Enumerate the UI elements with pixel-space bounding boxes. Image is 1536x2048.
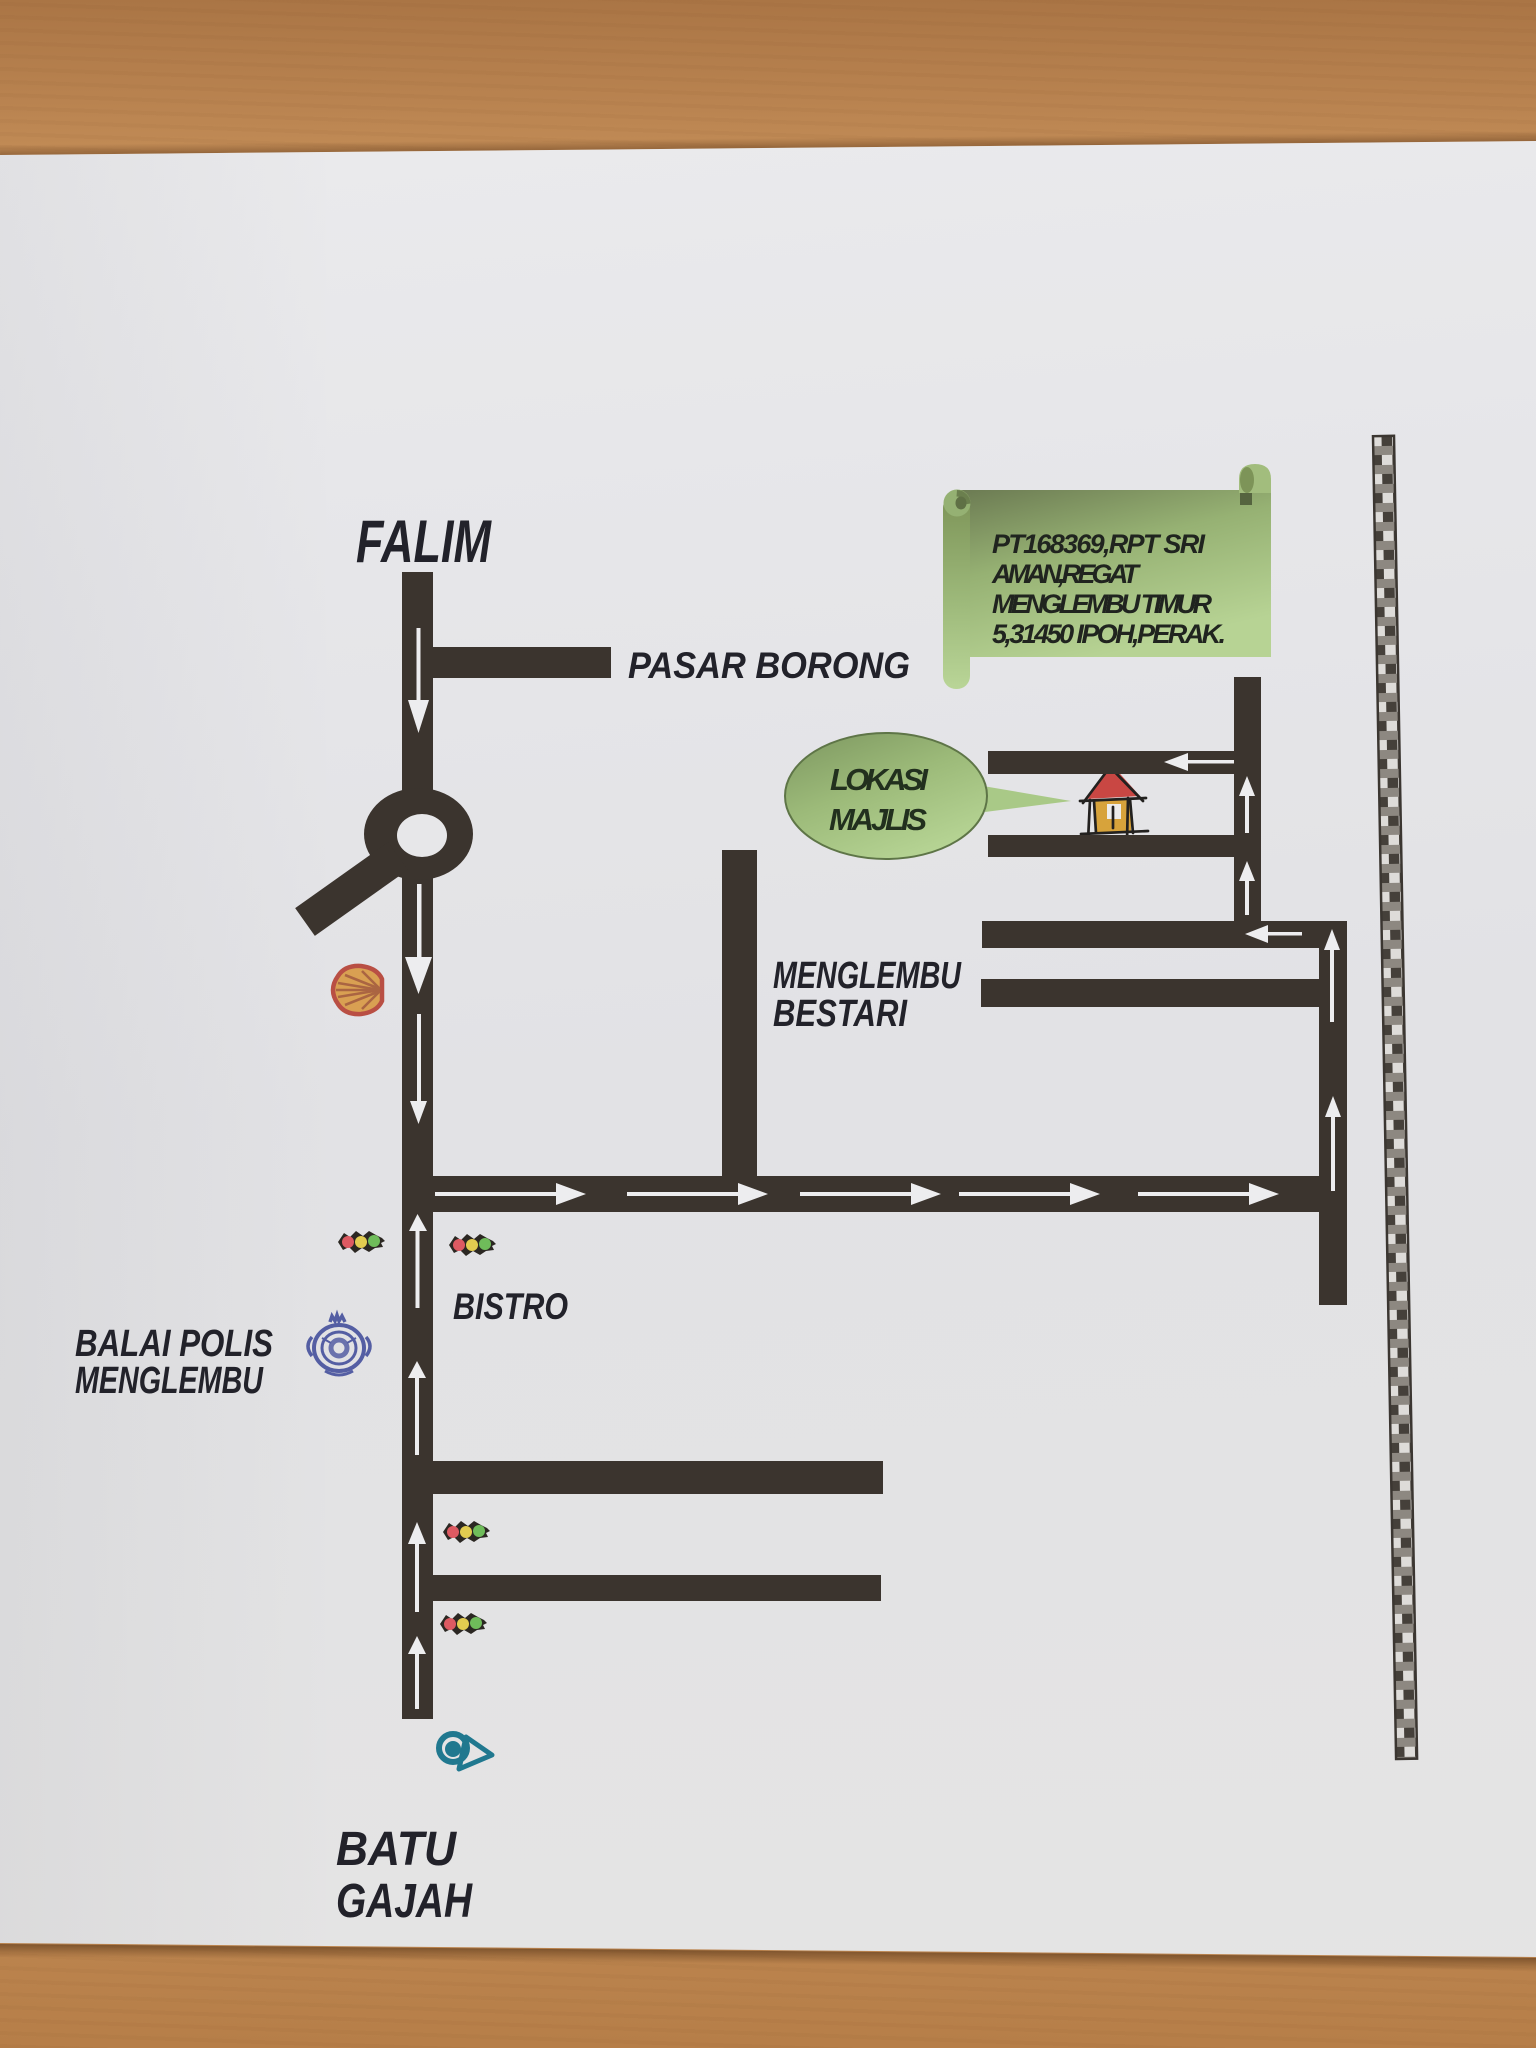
svg-text:BALAI POLIS: BALAI POLIS xyxy=(75,1323,273,1365)
svg-text:BATU: BATU xyxy=(336,1823,457,1876)
svg-text:MENGLEMBU: MENGLEMBU xyxy=(75,1360,264,1402)
svg-text:MENGLEMBU TIMUR: MENGLEMBU TIMUR xyxy=(992,589,1213,619)
svg-text:FALIM: FALIM xyxy=(356,508,493,575)
svg-text:BISTRO: BISTRO xyxy=(453,1286,568,1327)
svg-text:PT168369,RPT SRI: PT168369,RPT SRI xyxy=(992,529,1205,559)
svg-text:LOKASI: LOKASI xyxy=(830,762,929,797)
svg-text:MENGLEMBU: MENGLEMBU xyxy=(773,955,962,997)
svg-text:MAJLIS: MAJLIS xyxy=(829,802,927,837)
svg-text:AMAN,REGAT: AMAN,REGAT xyxy=(991,559,1142,589)
svg-text:PASAR BORONG: PASAR BORONG xyxy=(628,645,910,686)
svg-text:BESTARI: BESTARI xyxy=(773,993,908,1035)
svg-text:GAJAH: GAJAH xyxy=(336,1875,473,1928)
svg-text:5,31450 IPOH,PERAK.: 5,31450 IPOH,PERAK. xyxy=(992,619,1226,649)
